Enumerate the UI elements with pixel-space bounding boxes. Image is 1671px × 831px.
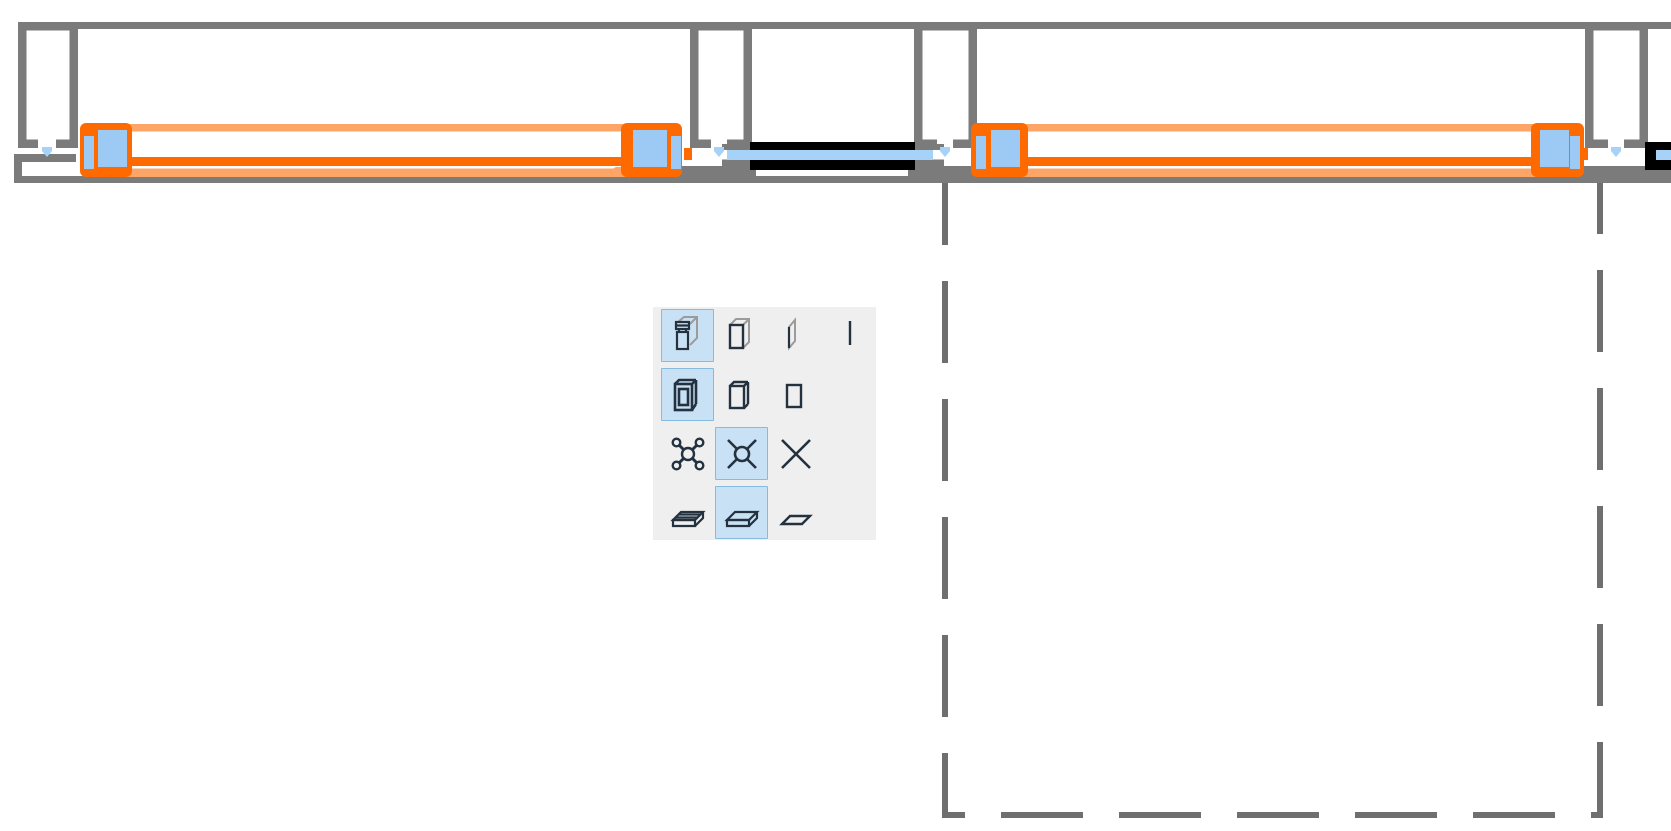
palette-cell-cross-nodes-detailed[interactable] bbox=[661, 427, 714, 480]
panel-3d-icon bbox=[774, 314, 818, 358]
slab-flat-icon bbox=[774, 491, 818, 535]
palette-cell-rectangle-2d[interactable] bbox=[769, 368, 822, 421]
palette-cell-frame-3d-simple[interactable] bbox=[715, 368, 768, 421]
window-selected-right[interactable] bbox=[971, 123, 1588, 177]
window-unselected-right-partial[interactable] bbox=[1645, 142, 1671, 170]
selection-handle[interactable] bbox=[621, 123, 682, 177]
palette-cell-box-3d-detailed[interactable] bbox=[661, 309, 714, 362]
slab-3d-simple-icon bbox=[720, 491, 764, 535]
palette-cell-slab-flat[interactable] bbox=[769, 486, 822, 539]
palette-cell-frame-3d-detailed[interactable] bbox=[661, 368, 714, 421]
line-2d-icon bbox=[828, 314, 872, 358]
palette-row-1 bbox=[661, 309, 876, 362]
selection-handle[interactable] bbox=[971, 123, 1028, 177]
palette-cell-slab-3d-simple[interactable] bbox=[715, 486, 768, 539]
window-unselected-middle[interactable] bbox=[727, 142, 933, 170]
marquee-selection[interactable] bbox=[945, 183, 1600, 815]
palette-cell-box-3d-simple[interactable] bbox=[715, 309, 768, 362]
selection-handle[interactable] bbox=[1531, 123, 1584, 177]
selection-handle[interactable] bbox=[80, 123, 132, 177]
box-3d-detailed-icon bbox=[666, 314, 710, 358]
palette-row-3 bbox=[661, 427, 876, 480]
cross-node-simple-icon bbox=[720, 432, 764, 476]
palette-cell-line-2d[interactable] bbox=[823, 309, 876, 362]
palette-cell-panel-3d[interactable] bbox=[769, 309, 822, 362]
cross-nodes-detailed-icon bbox=[666, 432, 710, 476]
palette-row-2 bbox=[661, 368, 876, 421]
palette-cell-slab-3d-detailed[interactable] bbox=[661, 486, 714, 539]
palette-cell-cross-node-simple[interactable] bbox=[715, 427, 768, 480]
frame-3d-detailed-icon bbox=[666, 373, 710, 417]
palette-row-4 bbox=[661, 486, 876, 539]
frame-3d-simple-icon bbox=[720, 373, 764, 417]
box-3d-simple-icon bbox=[720, 314, 764, 358]
rectangle-2d-icon bbox=[774, 373, 818, 417]
display-options-palette bbox=[653, 307, 876, 540]
palette-cell-cross-plain[interactable] bbox=[769, 427, 822, 480]
slab-3d-detailed-icon bbox=[666, 491, 710, 535]
cross-plain-icon bbox=[774, 432, 818, 476]
window-selected-left[interactable] bbox=[80, 123, 692, 177]
